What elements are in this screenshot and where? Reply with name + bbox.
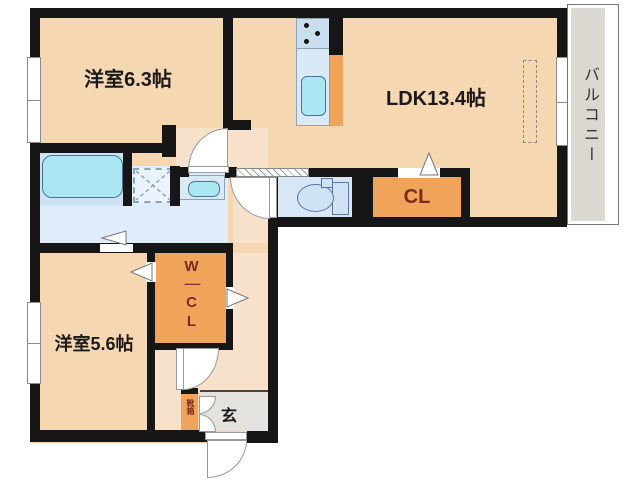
wall-left-a (30, 18, 40, 57)
washing-machine-space (133, 168, 173, 203)
hallway-sliver (155, 390, 181, 432)
toilet-flush-box (321, 178, 333, 188)
wall-center-stub (233, 120, 251, 130)
ldk-label: LDK13.4帖 (366, 82, 506, 111)
window-bedroom1-left (27, 57, 41, 143)
refrigerator-space (523, 60, 537, 143)
hatched-opening (236, 168, 309, 177)
entrance-door-arc (207, 440, 247, 478)
wall-top (30, 8, 567, 18)
bedroom1-door-leaf (188, 166, 229, 173)
wall-ldk-right-b (557, 146, 567, 227)
kitchen-sink (301, 76, 326, 116)
balcony-label: バルコニー (577, 66, 601, 166)
hall-door-leaf (176, 348, 184, 390)
cl-door-gap (398, 168, 440, 178)
wall-left-b (30, 143, 40, 302)
washroom-door-gap (100, 244, 133, 252)
wall-bathroom-right (123, 150, 132, 206)
wall-ldk-right-a (557, 18, 567, 57)
shoe-cabinet-label: 靴箱 (185, 399, 196, 415)
wicl-door-gap-right (226, 287, 235, 309)
bathtub (42, 155, 123, 198)
wicl-label: W｜CL (181, 258, 202, 332)
closet-cl-label: CL (373, 186, 461, 209)
stove-burner-2 (315, 31, 320, 36)
wall-center (223, 8, 233, 130)
kitchen-stove (297, 19, 329, 49)
wall-bedroom1-node (162, 125, 176, 157)
bedroom1-label: 洋室6.3帖 (58, 63, 198, 92)
kitchen-counter-side (330, 55, 343, 126)
entrance-door-leaf (205, 432, 247, 440)
toilet-bowl (297, 184, 334, 212)
wall-ldk-bottom (278, 217, 567, 227)
stove-burner-1 (304, 23, 309, 28)
washroom (37, 200, 228, 243)
wall-bottom-left (30, 430, 207, 442)
bedroom2-label: 洋室5.6帖 (34, 330, 154, 356)
toilet-tank (332, 182, 349, 215)
floor-plan: CL (0, 0, 640, 480)
hallway-mid (233, 253, 268, 350)
wicl-door-gap-left (146, 262, 156, 282)
stove-burner-3 (304, 39, 309, 44)
toilet-door-leaf (269, 177, 277, 218)
entrance-label: 玄 (221, 402, 237, 426)
wall-bedroom1-south (37, 143, 176, 153)
wash-basin (188, 181, 220, 197)
